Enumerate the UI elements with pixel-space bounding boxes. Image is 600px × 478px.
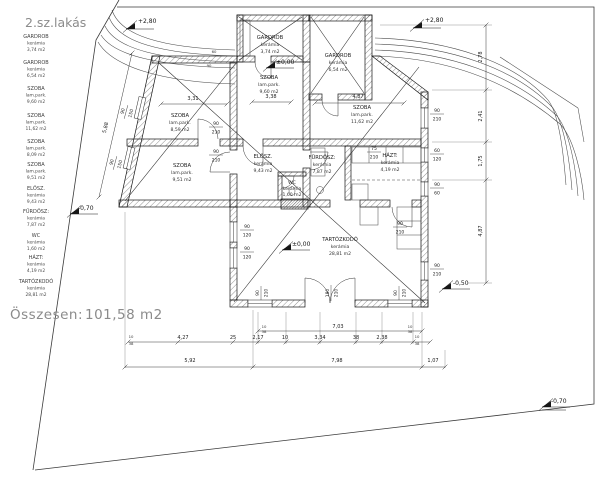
window-tart-left-2 bbox=[230, 248, 237, 268]
room-material: kerámia bbox=[313, 161, 332, 168]
svg-text:210: 210 bbox=[212, 158, 221, 164]
legend-room-material: lam.park. bbox=[26, 169, 47, 175]
level-zero-entry: ±0,00 bbox=[276, 59, 295, 66]
window-right-2 bbox=[421, 148, 428, 162]
room-area: 1,60 m2 bbox=[282, 192, 301, 198]
legend-item-wc: WC kerámia 1,60 m2 bbox=[27, 233, 45, 252]
legend-item-tartozkodo: TARTÓZKODÓ kerámia 28,81 m2 bbox=[18, 278, 53, 298]
dim-217: 2,17 bbox=[252, 335, 263, 341]
legend-room-name: WC bbox=[32, 233, 41, 239]
svg-text:90: 90 bbox=[397, 221, 403, 227]
room-label-tartozkodo: TARTÓZKODÓ kerámia 28,81 m2 bbox=[321, 236, 358, 257]
svg-text:210: 210 bbox=[433, 117, 442, 123]
room-label-elosz: ELŐSZ. kerámia 9,43 m2 bbox=[253, 153, 272, 174]
svg-text:60: 60 bbox=[434, 191, 440, 197]
legend-item-szoba3: SZOBA lam.park. 8,09 m2 bbox=[26, 139, 47, 158]
room-label-gardrob2: GARDROB kerámia 6,54 m2 bbox=[325, 53, 352, 73]
legend-room-name: GARDROB bbox=[23, 34, 49, 40]
dim-703: 7,03 bbox=[332, 324, 343, 330]
dim-tick-38: 38 bbox=[408, 329, 413, 334]
room-name: GARDROB bbox=[257, 35, 284, 41]
dim-60: 60 bbox=[212, 49, 217, 54]
room-name: SZOBA bbox=[171, 113, 189, 119]
level-plus280-left: +2,80 bbox=[138, 18, 157, 25]
dim-427: 4,27 bbox=[177, 335, 188, 341]
dim-487-right: 4,87 bbox=[478, 225, 484, 236]
room-area: 8,59 m2 bbox=[170, 127, 189, 133]
floor-plan-page: 2.sz.lakás GARDROB kerámia 3,74 m2 GARDR… bbox=[0, 0, 600, 478]
room-material: kerámia bbox=[331, 243, 350, 250]
window-tart-left-1 bbox=[230, 222, 237, 242]
page-title: 2.sz.lakás bbox=[25, 15, 86, 30]
dim-107: 1,07 bbox=[427, 358, 438, 364]
room-name: TARTÓZKODÓ bbox=[321, 236, 358, 243]
legend-room-material: lam.park. bbox=[26, 93, 47, 99]
room-name: SZOBA bbox=[260, 75, 278, 81]
room-material: kerámia bbox=[283, 185, 302, 192]
room-label-szoba-bal-also: SZOBA lam.park. 9,51 m2 bbox=[171, 163, 193, 183]
level-minus070-left: -0,70 bbox=[78, 205, 94, 212]
dim-tick-10: 10 bbox=[129, 334, 134, 339]
legend-room-area: 28,81 m2 bbox=[25, 292, 46, 298]
room-material: kerámia bbox=[381, 159, 400, 166]
door-size-90-210: 90210 bbox=[209, 121, 223, 136]
svg-text:210: 210 bbox=[264, 289, 270, 298]
legend-room-name: ELŐSZ. bbox=[27, 185, 45, 192]
svg-text:210: 210 bbox=[433, 272, 442, 278]
room-material: lam.park. bbox=[258, 82, 280, 88]
level-plus280-right: +2,80 bbox=[425, 17, 444, 24]
room-area: 4,19 m2 bbox=[380, 167, 399, 173]
dim-592: 5,92 bbox=[184, 358, 195, 364]
svg-text:90: 90 bbox=[244, 224, 250, 230]
window-size-90-150: 90150 bbox=[118, 104, 136, 121]
legend-room-material: kerámia bbox=[27, 192, 45, 199]
dim-334: 3,34 bbox=[314, 335, 325, 341]
legend-item-szoba4: SZOBA lam.park. 9,51 m2 bbox=[26, 162, 47, 181]
legend-room-name: SZOBA bbox=[27, 162, 45, 168]
legend-room-area: 9,60 m2 bbox=[27, 99, 45, 105]
room-name: GARDROB bbox=[325, 53, 352, 59]
svg-text:120: 120 bbox=[243, 255, 252, 261]
legend-room-area: 9,43 m2 bbox=[27, 199, 45, 205]
window-size-90-210: 90210 bbox=[255, 286, 270, 300]
room-area: 11,62 m2 bbox=[351, 119, 373, 125]
legend-item-hazt: HÁZT: kerámia 4,19 m2 bbox=[27, 254, 45, 274]
total-value: 101,58 m2 bbox=[85, 307, 163, 323]
room-label-wc: WC kerámia 1,60 m2 bbox=[282, 180, 301, 198]
dim-487-room: 4,87 bbox=[352, 94, 363, 100]
svg-text:90: 90 bbox=[213, 149, 219, 155]
svg-text:210: 210 bbox=[212, 130, 221, 136]
window-right-3 bbox=[421, 182, 428, 196]
svg-text:75: 75 bbox=[371, 146, 377, 152]
legend-room-name: GARDROB bbox=[23, 60, 49, 66]
door-size-90-210: 90210 bbox=[209, 149, 223, 164]
svg-text:90: 90 bbox=[434, 108, 440, 114]
site-boundary bbox=[33, 0, 594, 470]
window-size-90-60: 9060 bbox=[430, 182, 444, 197]
dim-338: 3,38 bbox=[265, 94, 276, 100]
room-name: SZOBA bbox=[353, 105, 371, 111]
legend-room-name: TARTÓZKODÓ bbox=[18, 278, 53, 285]
svg-text:120: 120 bbox=[433, 157, 442, 163]
legend-room-area: 4,19 m2 bbox=[27, 268, 45, 274]
svg-text:90: 90 bbox=[434, 182, 440, 188]
room-label-furdosz: FÜRDŐSZ: kerámia 7,87 m2 bbox=[308, 154, 335, 175]
legend-item-elosz: ELŐSZ. kerámia 9,43 m2 bbox=[27, 185, 46, 205]
room-label-szoba-jobb: SZOBA lam.park. 11,62 m2 bbox=[351, 105, 373, 125]
room-area: 9,43 m2 bbox=[253, 168, 272, 174]
legend-room-name: SZOBA bbox=[27, 86, 45, 92]
svg-text:90: 90 bbox=[213, 121, 219, 127]
room-label-szoba-bal-felso: SZOBA lam.park. 8,59 m2 bbox=[169, 113, 191, 133]
legend-room-area: 1,60 m2 bbox=[27, 246, 45, 252]
legend-room-name: FÜRDŐSZ: bbox=[23, 208, 49, 215]
room-area: 7,87 m2 bbox=[312, 169, 331, 175]
legend-room-area: 7,87 m2 bbox=[27, 222, 45, 228]
dim-238: 2,38 bbox=[376, 335, 387, 341]
window-size-90-120: 90120 bbox=[240, 224, 254, 239]
floor-plan-drawing: 2.sz.lakás GARDROB kerámia 3,74 m2 GARDR… bbox=[0, 0, 600, 478]
svg-text:210: 210 bbox=[370, 155, 379, 161]
dim-tick-38: 38 bbox=[262, 329, 267, 334]
legend-room-material: kerámia bbox=[27, 40, 45, 47]
room-material: lam.park. bbox=[351, 112, 373, 118]
dim-tick-38: 38 bbox=[129, 341, 134, 346]
svg-text:90: 90 bbox=[393, 290, 399, 296]
room-area: 9,51 m2 bbox=[172, 177, 191, 183]
dim-798: 7,98 bbox=[331, 358, 342, 364]
room-name: HÁZT: bbox=[382, 152, 398, 159]
svg-text:210: 210 bbox=[334, 289, 340, 298]
legend: 2.sz.lakás GARDROB kerámia 3,74 m2 GARDR… bbox=[10, 15, 163, 323]
dim-tick-38: 38 bbox=[415, 341, 420, 346]
legend-room-material: kerámia bbox=[27, 285, 45, 292]
legend-item-furdosz: FÜRDŐSZ: kerámia 7,87 m2 bbox=[23, 208, 49, 228]
chimney bbox=[281, 199, 308, 209]
legend-room-area: 3,74 m2 bbox=[27, 47, 45, 53]
window-right-1 bbox=[421, 108, 428, 128]
window-size-90-210: 90210 bbox=[393, 286, 408, 300]
level-markers bbox=[67, 20, 570, 411]
svg-text:210: 210 bbox=[396, 230, 405, 236]
total-label: Összesen: bbox=[10, 305, 83, 323]
window-right-4 bbox=[421, 262, 428, 280]
room-name: WC bbox=[288, 180, 296, 186]
dim-588: 5,88 bbox=[102, 122, 110, 134]
room-material: kerámia bbox=[254, 160, 273, 167]
svg-text:90: 90 bbox=[255, 290, 261, 296]
dim-241: 2,41 bbox=[478, 110, 484, 121]
dim-tick-10: 10 bbox=[415, 334, 420, 339]
svg-text:120: 120 bbox=[243, 233, 252, 239]
room-area: 3,74 m2 bbox=[260, 49, 279, 55]
svg-text:210: 210 bbox=[402, 289, 408, 298]
dim-10: 10 bbox=[282, 335, 288, 341]
door-size-90-210: 90210 bbox=[393, 221, 407, 236]
window-size-90-210: 90210 bbox=[430, 108, 444, 123]
level-minus050-right: -0,50 bbox=[453, 280, 469, 287]
dim-278: 2,78 bbox=[478, 51, 484, 62]
room-material: lam.park. bbox=[169, 120, 191, 126]
room-material: lam.park. bbox=[171, 170, 193, 176]
room-material: kerámia bbox=[261, 41, 280, 48]
window-size-90-150: 90150 bbox=[107, 155, 125, 172]
legend-room-area: 9,51 m2 bbox=[27, 175, 45, 181]
total-area: Összesen: 101,58 m2 bbox=[10, 305, 163, 323]
dim-331: 3,31 bbox=[187, 96, 198, 102]
legend-item-gardrob2: GARDROB kerámia 6,54 m2 bbox=[23, 60, 49, 79]
legend-room-name: SZOBA bbox=[27, 113, 45, 119]
window-bottom-2 bbox=[388, 300, 412, 307]
room-label-szoba-felso: SZOBA lam.park. 9,60 m2 bbox=[258, 75, 280, 95]
legend-room-name: SZOBA bbox=[27, 139, 45, 145]
legend-room-material: kerámia bbox=[27, 261, 45, 268]
legend-room-area: 8,09 m2 bbox=[27, 152, 45, 158]
legend-room-material: kerámia bbox=[27, 66, 45, 73]
dim-175: 1,75 bbox=[478, 155, 484, 166]
legend-room-area: 11,62 m2 bbox=[25, 126, 46, 132]
room-label-hazt: HÁZT: kerámia 4,19 m2 bbox=[380, 152, 399, 173]
window-size-60-120: 60120 bbox=[430, 148, 444, 163]
legend-item-gardrob1: GARDROB kerámia 3,74 m2 bbox=[23, 34, 49, 53]
level-minus070-corner: -0,70 bbox=[551, 398, 567, 405]
legend-room-material: lam.park. bbox=[26, 120, 47, 126]
legend-room-material: lam.park. bbox=[26, 146, 47, 152]
svg-text:90: 90 bbox=[434, 263, 440, 269]
legend-room-name: HÁZT: bbox=[29, 254, 44, 261]
room-name: FÜRDŐSZ: bbox=[308, 154, 335, 161]
dim-38: 38 bbox=[353, 335, 359, 341]
legend-room-material: kerámia bbox=[27, 239, 45, 246]
level-zero-living: ±0,00 bbox=[292, 241, 311, 248]
room-material: kerámia bbox=[329, 59, 348, 66]
room-name: SZOBA bbox=[173, 163, 191, 169]
room-area: 6,54 m2 bbox=[328, 67, 347, 73]
dim-25: 25 bbox=[230, 335, 236, 341]
legend-item-szoba2: SZOBA lam.park. 11,62 m2 bbox=[25, 113, 46, 132]
window-size-90-210: 90210 bbox=[430, 263, 444, 278]
svg-text:60: 60 bbox=[434, 148, 440, 154]
window-size-90-120: 90120 bbox=[240, 246, 254, 261]
svg-text:180: 180 bbox=[325, 289, 331, 298]
legend-room-material: kerámia bbox=[27, 215, 45, 222]
legend-room-area: 6,54 m2 bbox=[27, 73, 45, 79]
dim-90: 90 bbox=[207, 63, 212, 68]
room-name: ELŐSZ. bbox=[254, 153, 273, 160]
room-area: 28,81 m2 bbox=[329, 251, 351, 257]
legend-item-szoba1: SZOBA lam.park. 9,60 m2 bbox=[26, 86, 47, 105]
svg-text:90: 90 bbox=[244, 246, 250, 252]
window-bottom-1 bbox=[248, 300, 272, 307]
